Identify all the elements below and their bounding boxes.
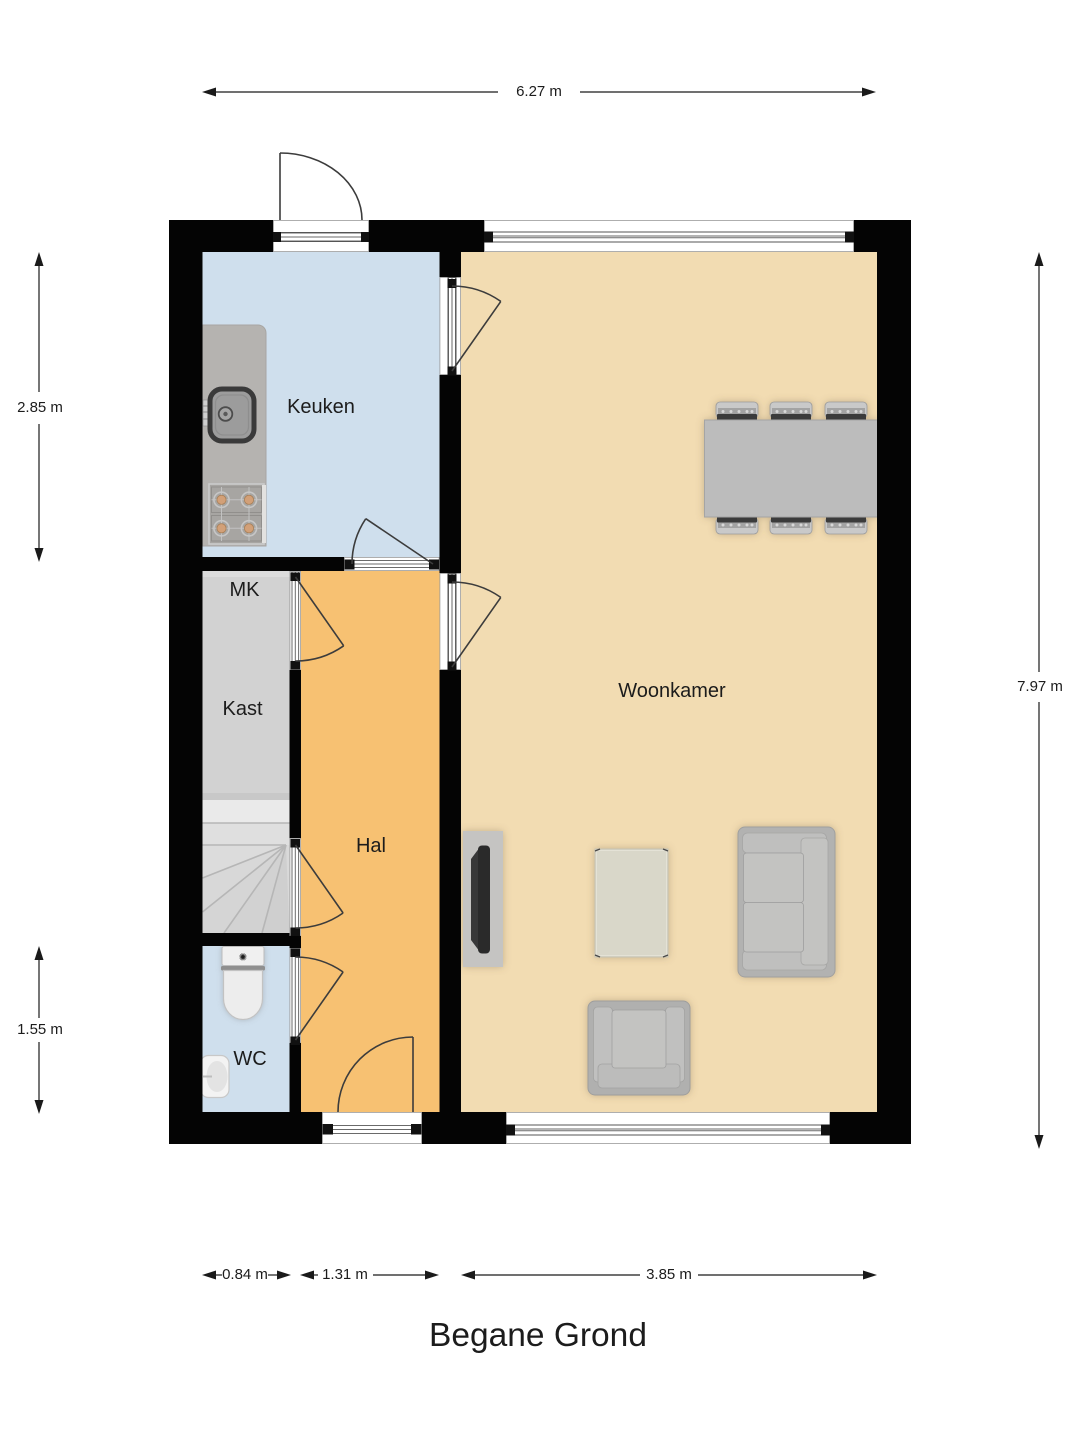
svg-text:1.31 m: 1.31 m (322, 1266, 368, 1283)
svg-text:MK: MK (230, 579, 261, 601)
svg-text:✺: ✺ (239, 953, 247, 964)
svg-text:6.27 m: 6.27 m (516, 83, 562, 100)
svg-text:7.97 m: 7.97 m (1017, 678, 1063, 695)
svg-text:WC: WC (233, 1048, 266, 1070)
svg-text:Kast: Kast (222, 698, 262, 720)
svg-text:Woonkamer: Woonkamer (618, 680, 726, 702)
svg-text:Hal: Hal (356, 835, 386, 857)
svg-text:Begane Grond: Begane Grond (429, 1317, 647, 1354)
svg-text:3.85 m: 3.85 m (646, 1266, 692, 1283)
svg-text:0.84 m: 0.84 m (222, 1266, 268, 1283)
svg-text:Keuken: Keuken (287, 396, 355, 418)
svg-text:2.85 m: 2.85 m (17, 399, 63, 416)
svg-text:1.55 m: 1.55 m (17, 1021, 63, 1038)
